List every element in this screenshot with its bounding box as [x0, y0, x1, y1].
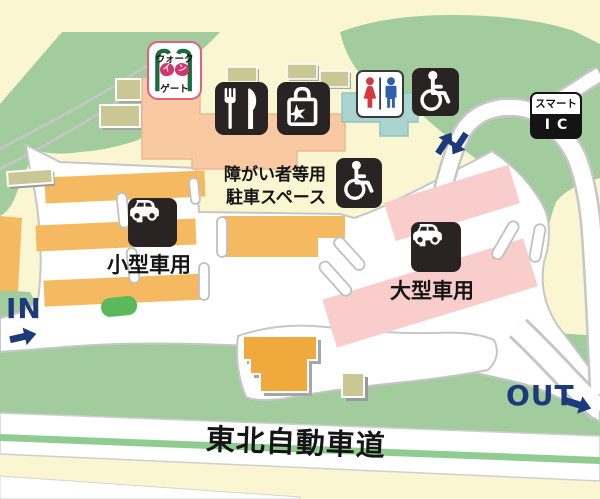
restroom-tile	[356, 70, 404, 118]
small-parking-tile: P	[128, 198, 177, 247]
restroom-icon	[358, 72, 402, 116]
shopping-icon	[277, 82, 330, 135]
restaurant-tile	[215, 82, 268, 135]
service-area-map: P P ウォーク イ ン ゲート	[0, 0, 600, 499]
highway-name-label: 東北自動車道	[205, 416, 386, 465]
smart-ic-sign: スマート IC	[530, 92, 582, 139]
in-label: IN	[6, 292, 42, 325]
wheelchair-icon	[412, 68, 459, 115]
out-label: OUT	[506, 379, 575, 412]
accessible-parking-wheelchair-icon	[336, 158, 382, 204]
large-vehicle-parking-label: 大型車用	[390, 275, 474, 305]
walk-gate-line3: ゲート	[149, 81, 200, 95]
large-parking-icon	[411, 222, 444, 245]
footprint-icon: イ	[159, 62, 175, 78]
smart-ic-line2: IC	[532, 115, 580, 137]
large-parking-tile: P	[411, 222, 461, 272]
accessible-parking-tile	[336, 158, 382, 208]
walk-gate-sign: ウォーク イ ン ゲート	[147, 41, 202, 100]
restaurant-icon	[215, 82, 268, 135]
smart-ic-line1: スマート	[532, 94, 580, 114]
footprint-icon: ン	[174, 62, 190, 77]
female-figure-icon	[364, 77, 377, 108]
wheelchair-tile	[412, 68, 459, 116]
small-parking-icon	[128, 198, 161, 221]
walk-gate-footprints: イ ン	[149, 63, 200, 76]
shopping-tile	[277, 82, 330, 135]
accessible-parking-label-line1: 障がい者等用	[224, 160, 326, 185]
male-figure-icon	[386, 77, 397, 108]
small-vehicle-parking-label: 小型車用	[107, 249, 191, 279]
bottom-road-wedge	[0, 476, 300, 499]
accessible-parking-label-line2: 駐車スペース	[226, 183, 326, 208]
